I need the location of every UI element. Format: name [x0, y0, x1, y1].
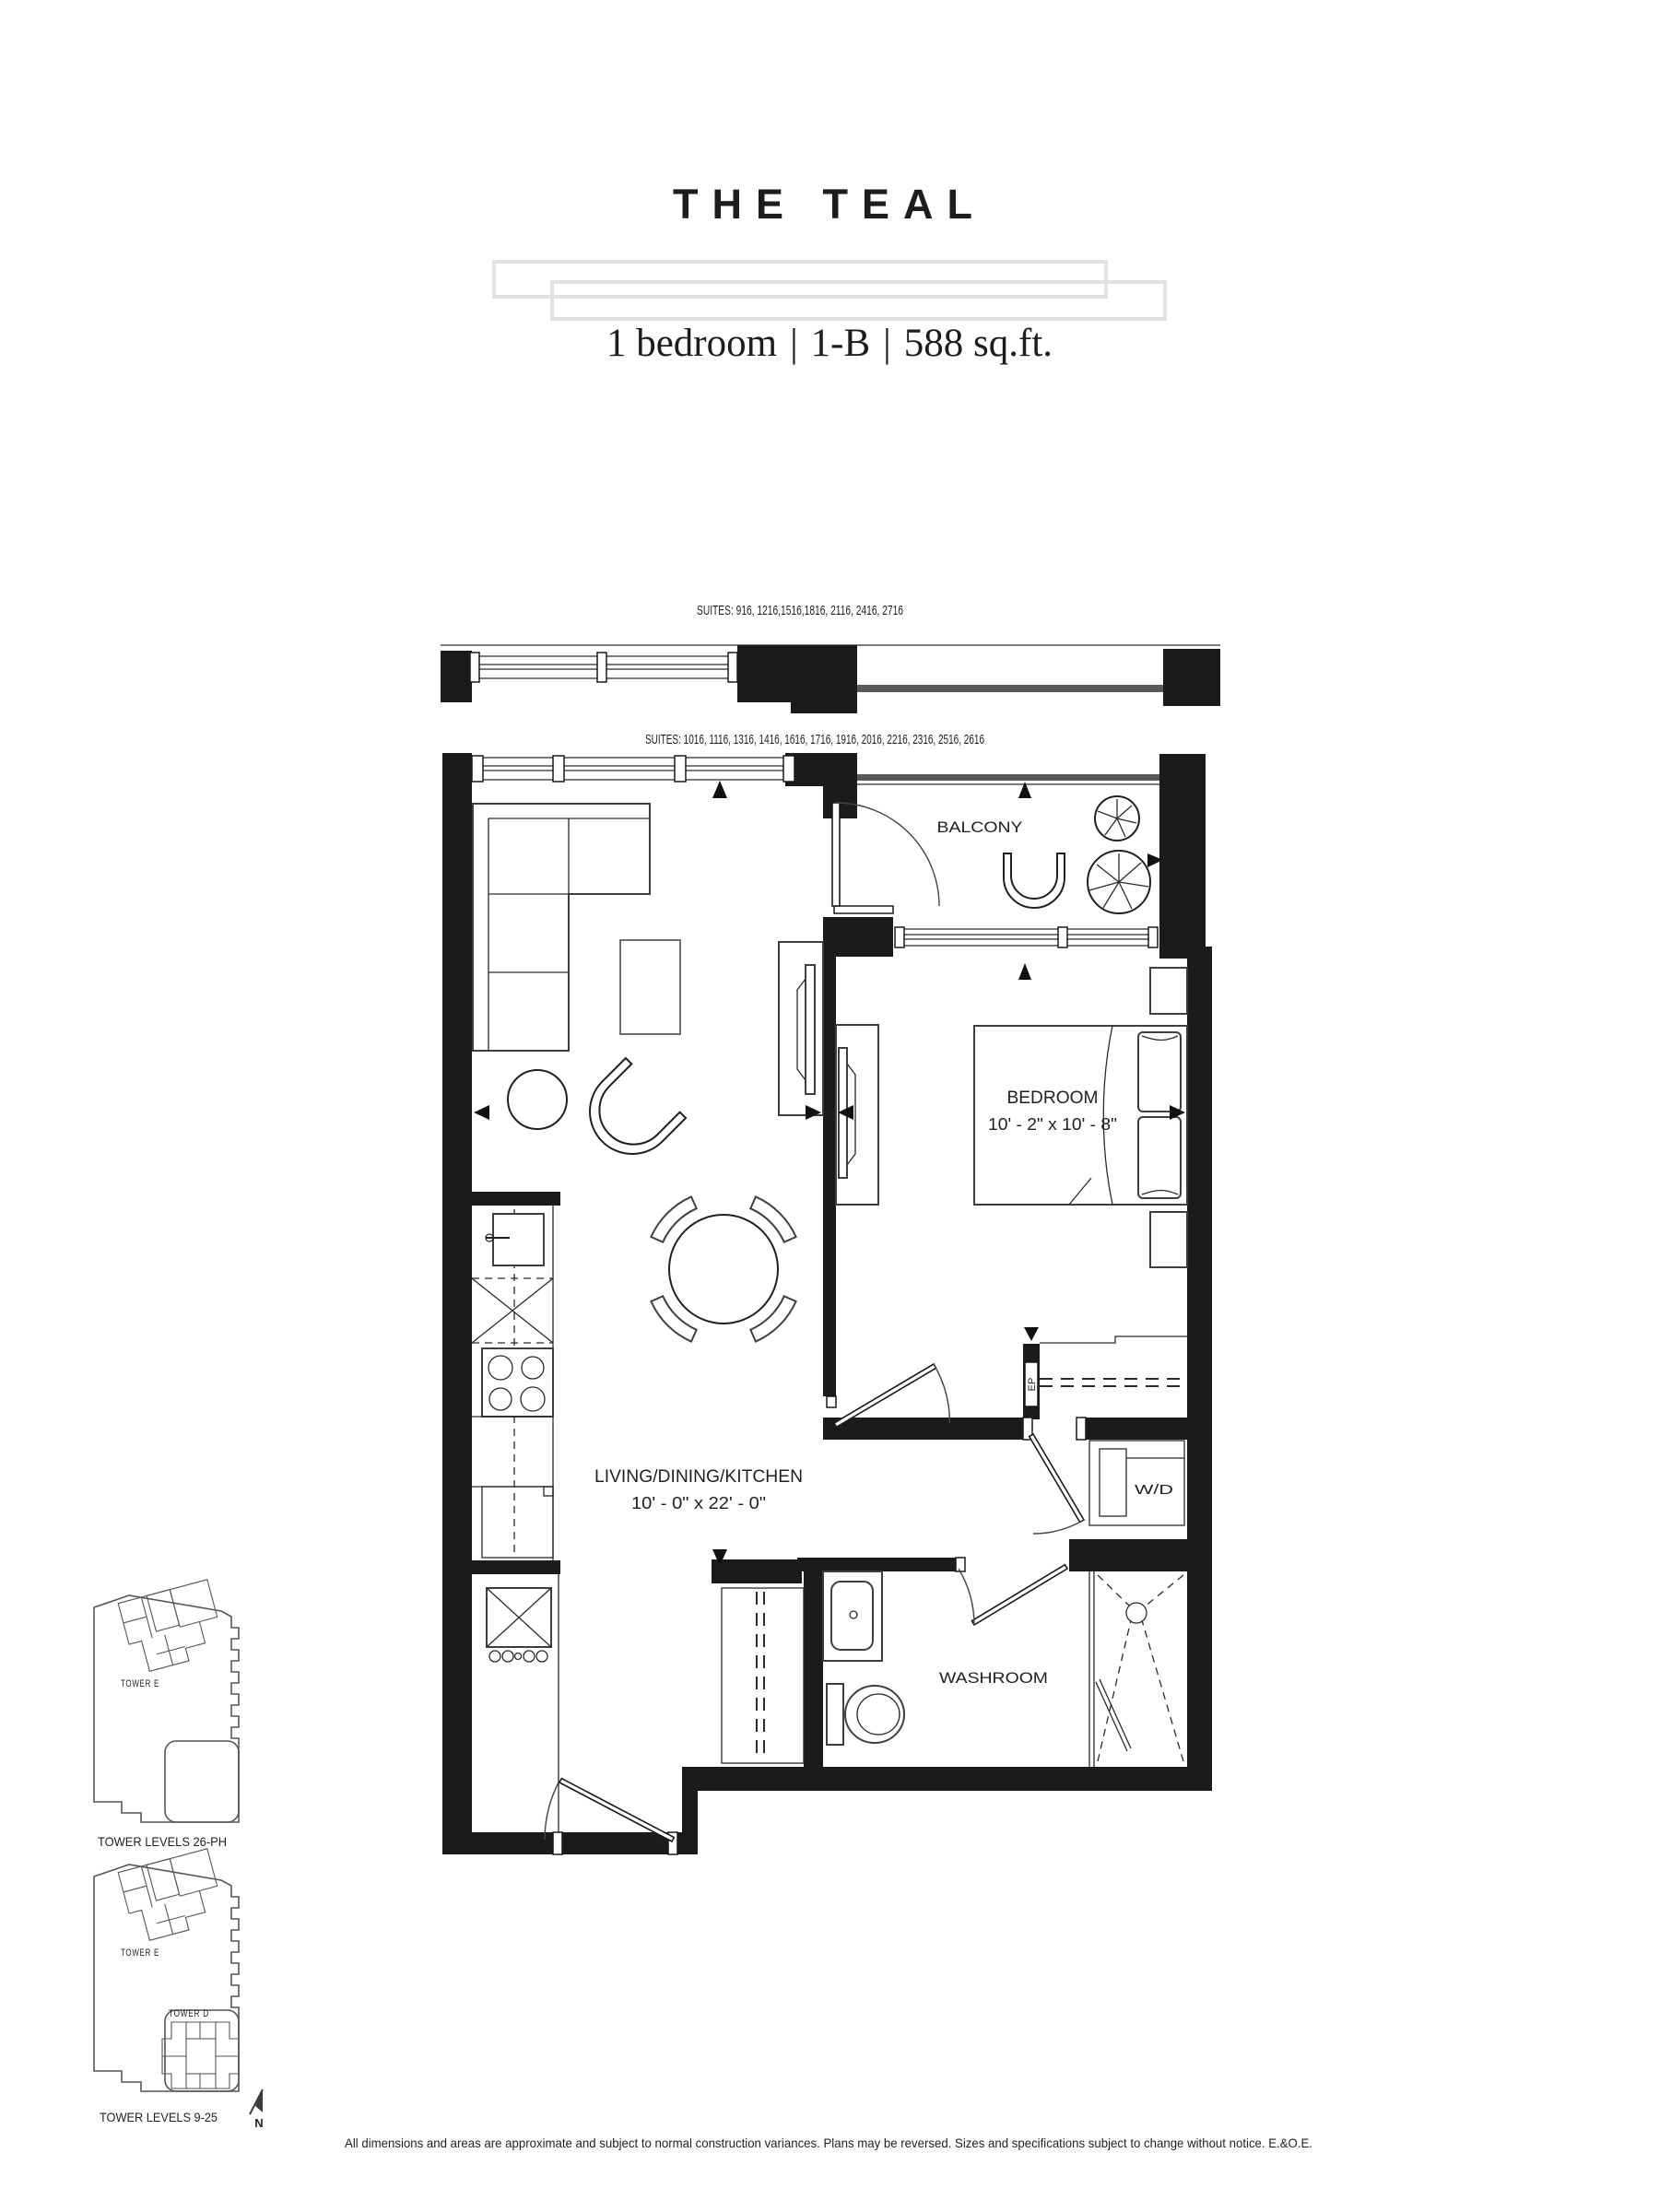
laundry-label: W/D [1135, 1482, 1173, 1498]
keyplan-upper: TOWER E TOWER LEVELS 26-PH [94, 1580, 239, 1849]
balcony-chair [1004, 853, 1065, 908]
keyplan-lower: TOWER E TOWER D TOWER LEVELS 9-25 [94, 1849, 239, 2124]
shower [1089, 1571, 1183, 1767]
section-window [470, 653, 737, 682]
floorplan-page: THE TEAL 1 bedroom|1-B|588 sq.ft. SUITES… [0, 0, 1659, 2212]
living-window [472, 756, 794, 782]
bedroom-tv-unit [836, 1025, 878, 1205]
laundry-closet: W/D [1089, 1441, 1184, 1525]
tower-d-plate [162, 2022, 239, 2088]
bedroom-dims: 10' - 2" x 10' - 8" [988, 1115, 1117, 1134]
nightstand-bottom [1150, 1212, 1187, 1267]
cooktop [482, 1348, 553, 1417]
keyplan-upper-caption: TOWER LEVELS 26-PH [98, 1834, 227, 1849]
living-tv-unit [779, 942, 823, 1115]
coffee-table [620, 940, 680, 1034]
north-label: N [254, 2116, 263, 2130]
dining-table [669, 1215, 778, 1324]
lounge-chair [572, 1058, 686, 1171]
suites-note-upper: SUITES: 916, 1216,1516,1816, 2116, 2416,… [697, 603, 903, 618]
washroom-label: WASHROOM [939, 1669, 1048, 1687]
living-dims: 10' - 0" x 22' - 0" [631, 1494, 766, 1512]
vanity-sink [823, 1571, 882, 1661]
foyer-closet [722, 1588, 804, 1763]
living-label: LIVING/DINING/KITCHEN [594, 1467, 803, 1487]
balcony-railing [857, 774, 1159, 781]
dishwasher [482, 1487, 553, 1558]
washroom-door [959, 1565, 1067, 1625]
dining-set [651, 1196, 795, 1341]
bedroom-window [895, 927, 1158, 947]
balcony-door [832, 803, 939, 913]
electrical-panel-label: EP [1027, 1378, 1038, 1392]
disclaimer: All dimensions and areas are approximate… [345, 2136, 1312, 2150]
kitchen [472, 1206, 553, 1560]
upper-cabinet [472, 1278, 553, 1343]
balcony-label: BALCONY [937, 818, 1023, 836]
tower-e-label: TOWER E [121, 1947, 159, 1959]
toilet [827, 1684, 904, 1745]
bedroom-closet: EP [1025, 1336, 1187, 1406]
kitchen-sink [486, 1214, 544, 1265]
tower-d-label: TOWER D [169, 2008, 209, 2019]
nightstand-top [1150, 968, 1187, 1014]
north-arrow: N [250, 2089, 264, 2130]
upper-balcony-section [441, 645, 1220, 713]
side-table [508, 1070, 567, 1129]
planter-tree-small [1095, 796, 1139, 841]
laundry-door [1030, 1434, 1084, 1534]
bedroom-label: BEDROOM [1007, 1088, 1099, 1108]
section-railing [857, 685, 1163, 692]
sofa [473, 804, 650, 1051]
suites-note-main: SUITES: 1016, 1116, 1316, 1416, 1616, 17… [645, 732, 984, 747]
mechanical-closet [487, 1574, 559, 1832]
floorplan-drawing: SUITES: 916, 1216,1516,1816, 2116, 2416,… [0, 0, 1659, 2212]
entry-door [545, 1779, 674, 1841]
tower-e-label: TOWER E [121, 1678, 159, 1689]
planter-tree-large [1088, 851, 1150, 913]
keyplan-lower-caption: TOWER LEVELS 9-25 [100, 2110, 218, 2124]
